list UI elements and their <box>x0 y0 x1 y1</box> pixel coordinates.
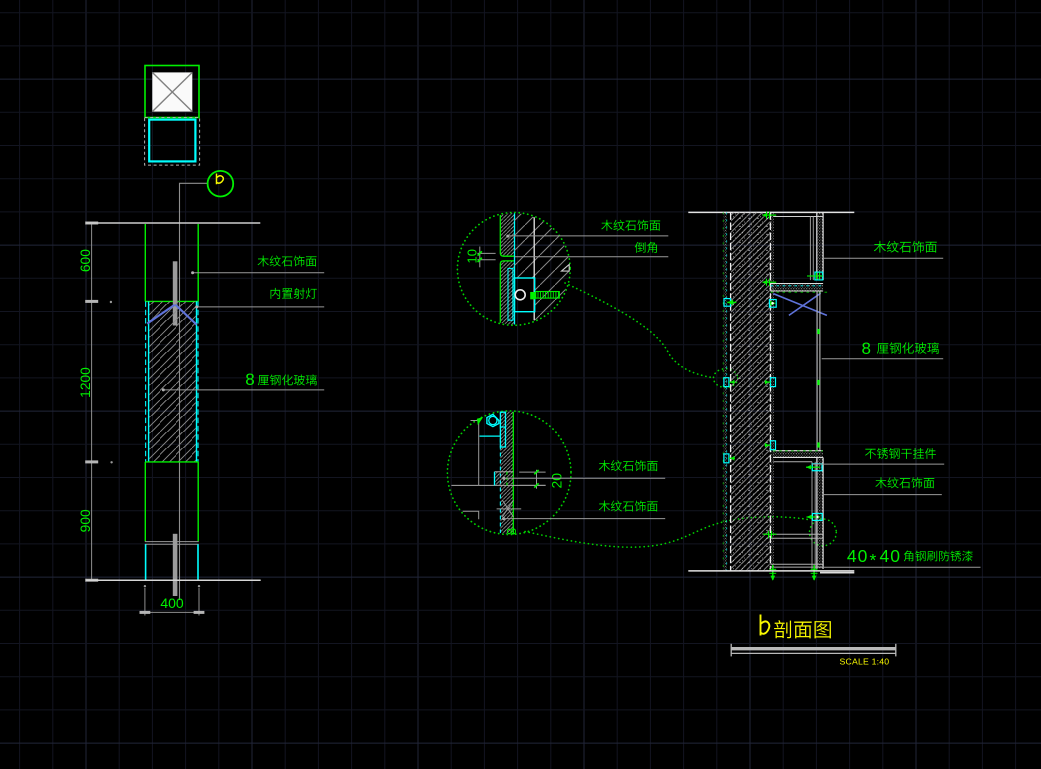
svg-text:10: 10 <box>464 249 479 263</box>
svg-text:900: 900 <box>78 509 93 532</box>
svg-text:600: 600 <box>78 249 93 272</box>
svg-text:1200: 1200 <box>78 367 93 398</box>
svg-text:8: 8 <box>245 370 254 389</box>
svg-text:40: 40 <box>847 546 868 566</box>
svg-text:400: 400 <box>160 595 184 611</box>
svg-text:40: 40 <box>880 546 901 566</box>
svg-text:8: 8 <box>862 339 871 358</box>
svg-text:8: 8 <box>504 528 519 535</box>
svg-text:SCALE 1:40: SCALE 1:40 <box>840 656 890 666</box>
svg-text:20: 20 <box>549 473 565 489</box>
